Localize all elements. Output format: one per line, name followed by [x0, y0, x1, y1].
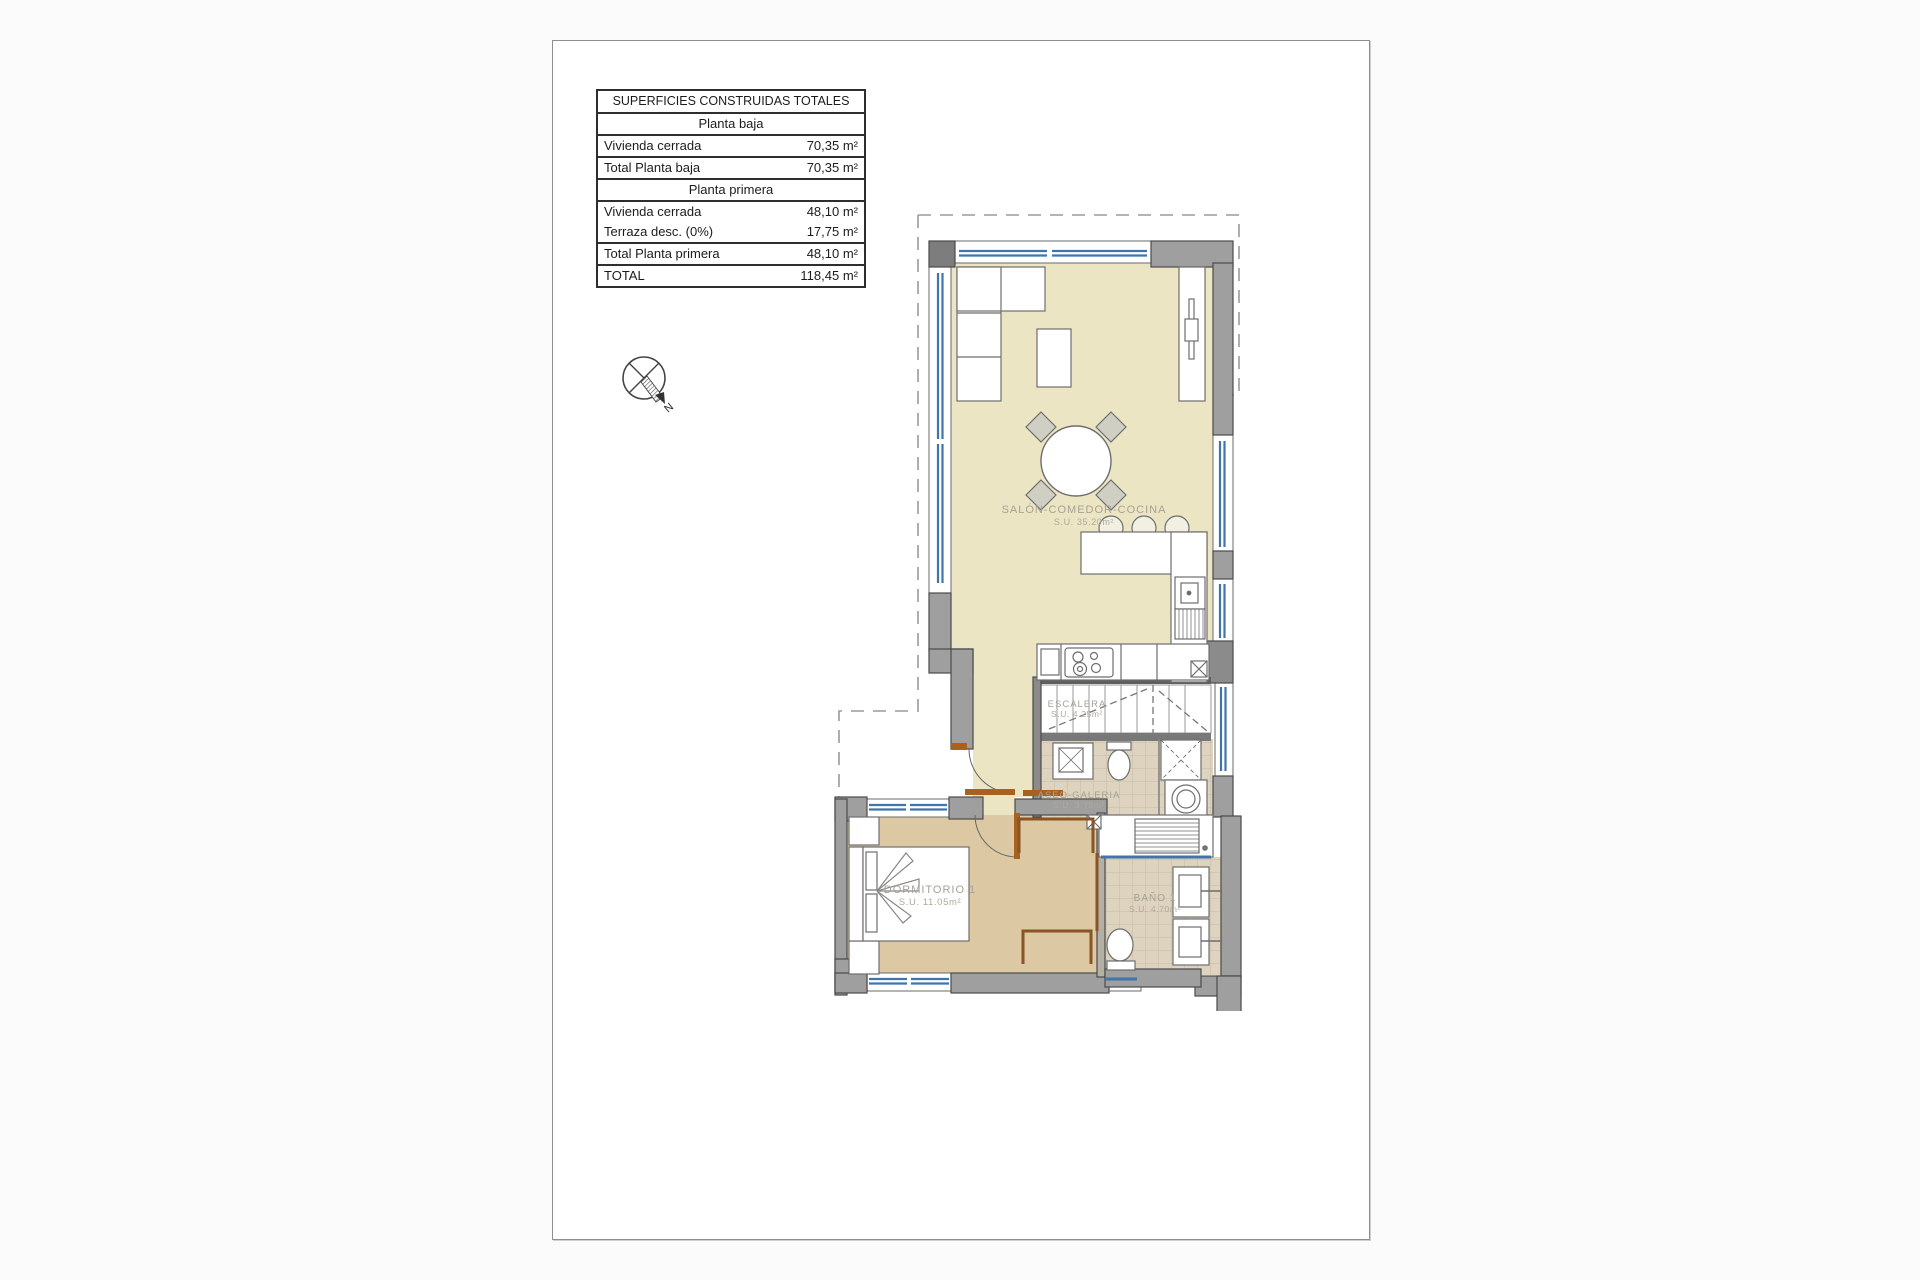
room-area-escalera: S.U. 4.25m² — [1051, 709, 1103, 719]
table-row: Terraza desc. (0%) 17,75 m² — [598, 222, 864, 244]
tv-cabinet — [1179, 267, 1205, 401]
cooktop — [1065, 648, 1113, 677]
table-row: Vivienda cerrada 48,10 m² — [598, 202, 864, 222]
areas-table-title: SUPERFICIES CONSTRUIDAS TOTALES — [598, 91, 864, 114]
areas-table: SUPERFICIES CONSTRUIDAS TOTALES Planta b… — [596, 89, 866, 288]
room-area-salon: S.U. 35.20m² — [1054, 517, 1114, 527]
coffee-table — [1037, 329, 1071, 387]
table-row-total: TOTAL 118,45 m² — [598, 266, 864, 286]
areas-table-section-planta-baja: Planta baja — [598, 114, 864, 136]
areas-table-section-planta-primera: Planta primera — [598, 180, 864, 202]
dining-set — [1026, 412, 1126, 510]
screenshot-canvas: SUPERFICIES CONSTRUIDAS TOTALES Planta b… — [0, 0, 1920, 1280]
plan-sheet-page: SUPERFICIES CONSTRUIDAS TOTALES Planta b… — [552, 40, 1370, 1240]
entry-door-leaf — [965, 789, 1015, 795]
dining-table — [1041, 426, 1111, 496]
compass-north-label: N — [662, 401, 676, 415]
galeria-counter — [1087, 815, 1213, 857]
aseo-toilet-tank — [1107, 742, 1131, 750]
bedroom-door-passage — [981, 797, 1015, 815]
bano-toilet — [1107, 929, 1133, 961]
room-area-dormitorio: S.U. 11.05m² — [899, 897, 961, 908]
washing-machine — [1165, 780, 1207, 818]
room-area-bano: S.U. 4.70m² — [1129, 904, 1181, 914]
room-label-bano: BAÑO 1 — [1134, 891, 1177, 904]
north-compass-icon: N — [605, 341, 700, 441]
room-label-salon: SALÓN-COMEDOR-COCINA — [1002, 503, 1167, 516]
table-row: Total Planta baja 70,35 m² — [598, 158, 864, 180]
table-row: Total Planta primera 48,10 m² — [598, 244, 864, 266]
room-label-dormitorio: DORMITORIO 1 — [884, 884, 976, 896]
room-area-aseo: S.U. 3.75m² — [1053, 800, 1105, 810]
aseo-toilet — [1108, 750, 1130, 780]
floor-plan: SALÓN-COMEDOR-COCINA S.U. 35.20m² ESCALE… — [831, 196, 1251, 1011]
kitchen-counter — [1037, 644, 1209, 680]
table-row: Vivienda cerrada 70,35 m² — [598, 136, 864, 158]
